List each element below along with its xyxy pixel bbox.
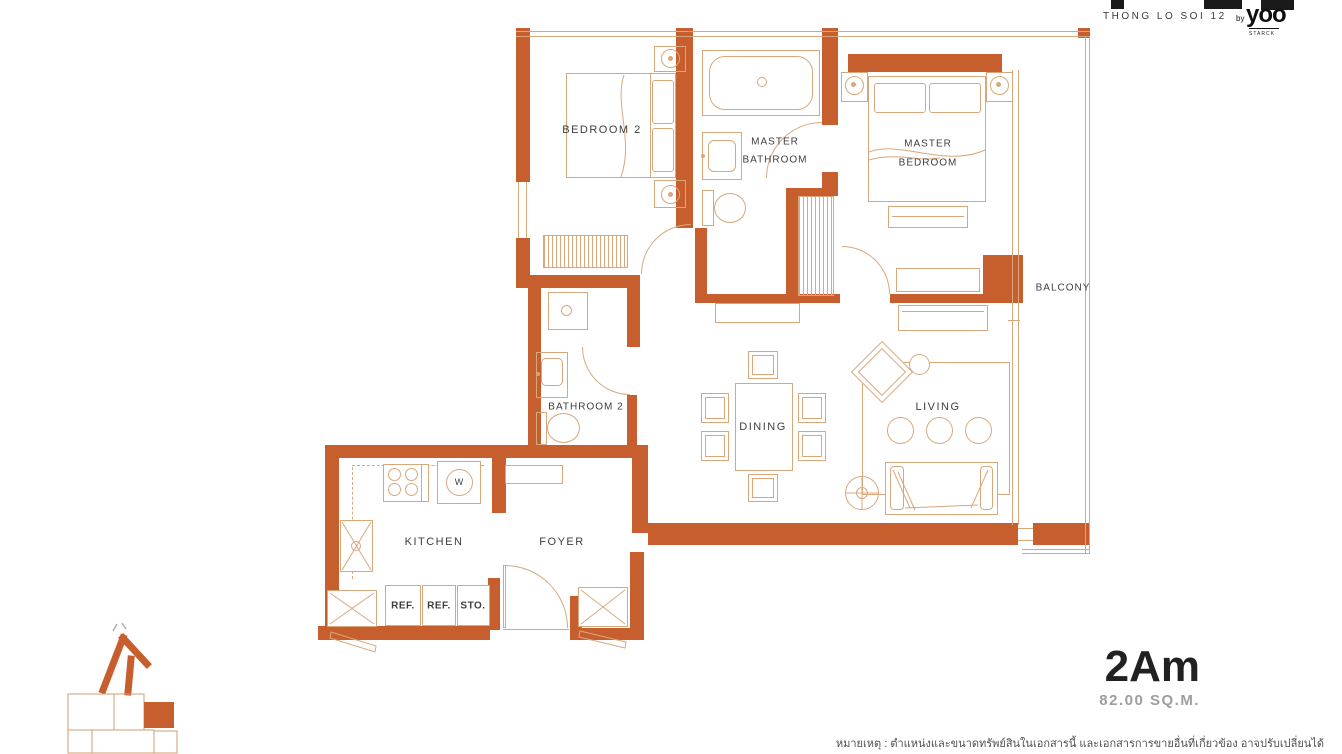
wall-segment	[786, 188, 798, 303]
wall-segment	[848, 54, 1002, 72]
wall-segment	[983, 255, 1023, 303]
pouf	[887, 417, 914, 444]
chair-seat	[752, 478, 774, 498]
north-arrow	[103, 638, 147, 692]
sofa-arm	[890, 466, 904, 510]
headboard-line	[650, 73, 651, 178]
wall-segment	[325, 445, 648, 458]
key-plan	[68, 694, 177, 753]
entrance-door-arc	[505, 565, 568, 628]
foyer-bench	[505, 465, 563, 484]
north-arrow-ticks	[113, 623, 126, 631]
key-plan-unit	[154, 731, 177, 753]
sink-basin	[708, 140, 736, 172]
brand-logo: yoo	[1246, 1, 1286, 29]
room-label-master-bedroom-2: BEDROOM	[899, 158, 958, 169]
wall-segment	[822, 28, 838, 125]
lamp-center	[996, 82, 1001, 87]
window-line	[516, 31, 1090, 32]
balcony-edge-line	[1022, 553, 1090, 554]
pouf	[965, 417, 992, 444]
side-table	[909, 354, 930, 375]
unit-info: 2Am 82.00 SQ.M.	[1040, 645, 1200, 709]
wall-segment	[570, 628, 644, 640]
lamp-center	[668, 56, 673, 61]
room-label-bathroom2: BATHROOM 2	[548, 402, 623, 413]
pillow	[652, 128, 674, 172]
wall-segment	[1033, 523, 1090, 545]
shaft	[327, 590, 377, 627]
key-plan-unit	[114, 694, 144, 730]
window-line	[1018, 70, 1019, 525]
bench-line	[892, 216, 964, 217]
unit-area: 82.00 SQ.M.	[1040, 692, 1200, 709]
project-name: THONG LO SOI 12	[1103, 11, 1227, 22]
faucet	[701, 154, 705, 158]
window-line	[1008, 320, 1020, 321]
window-line	[526, 182, 527, 238]
faucet	[536, 372, 540, 376]
burner	[388, 483, 401, 496]
room-label-dining: DINING	[739, 421, 787, 433]
key-plan-unit	[68, 694, 114, 730]
wall-segment	[516, 28, 530, 182]
key-plan-highlighted-unit	[144, 702, 174, 728]
console	[896, 268, 980, 292]
door-leaf	[503, 565, 506, 628]
room-label-living: LIVING	[915, 401, 960, 413]
toilet-tank	[536, 412, 547, 445]
window-line	[516, 36, 1090, 37]
drain	[561, 305, 572, 316]
pillow	[874, 83, 926, 113]
cropped-logo-fragment	[1204, 0, 1242, 9]
window-line	[1018, 528, 1033, 529]
balcony-edge-line	[1022, 549, 1090, 550]
door-arc	[842, 246, 890, 294]
burner	[388, 468, 401, 481]
room-label-master-bathroom-2: BATHROOM	[742, 155, 807, 166]
drain	[757, 77, 767, 87]
window-line	[1018, 540, 1033, 541]
tv-console	[898, 305, 988, 331]
lamp-center	[851, 82, 856, 87]
key-plan-unit	[92, 730, 154, 753]
shaft	[578, 587, 628, 627]
room-label-foyer: FOYER	[539, 536, 584, 548]
wall-segment	[630, 552, 644, 640]
stove-control-line	[421, 464, 422, 502]
appliance-label-washer: W	[455, 477, 464, 487]
appliance-label-sto: STO.	[460, 601, 485, 612]
balcony-edge-line	[1085, 36, 1086, 553]
wall-segment	[492, 458, 506, 513]
brand-by-label: by	[1236, 14, 1244, 23]
wall-segment	[318, 626, 490, 640]
cropped-logo-fragment	[1111, 0, 1124, 9]
lamp-center	[668, 192, 673, 197]
room-label-balcony: BALCONY	[1036, 283, 1091, 294]
chair-seat	[752, 355, 774, 375]
chair-seat	[705, 435, 725, 457]
door-arc	[766, 122, 822, 178]
bed-bench	[888, 206, 968, 228]
balcony-edge-line	[1089, 36, 1090, 553]
burner	[405, 483, 418, 496]
sink-basin	[541, 358, 563, 386]
floor-plan-page: BEDROOM 2 MASTER BATHROOM MASTER BEDROOM…	[0, 0, 1342, 754]
walkin-closet	[798, 196, 834, 296]
console-line	[902, 311, 984, 312]
appliance-label-ref1: REF.	[391, 601, 415, 612]
chair-seat	[802, 435, 822, 457]
door-arc	[641, 224, 691, 274]
wall-segment	[890, 294, 983, 303]
pillow	[652, 80, 674, 124]
brand-underline	[1249, 28, 1279, 29]
unit-name: 2Am	[1040, 645, 1200, 689]
wall-segment	[627, 275, 640, 347]
toilet-tank	[702, 190, 714, 226]
wall-segment	[695, 228, 707, 303]
pouf	[926, 417, 953, 444]
wall-segment	[632, 458, 648, 533]
threshold-line	[503, 629, 569, 630]
key-plan-unit	[68, 730, 92, 753]
footnote: หมายเหตุ : ตำแหน่งและขนาดทรัพย์สินในเอกส…	[836, 734, 1324, 752]
wall-segment	[648, 523, 1018, 545]
window-line	[518, 182, 519, 238]
door-arc	[582, 347, 630, 395]
brand-sub-label: STARCK	[1249, 31, 1275, 37]
wall-segment	[516, 275, 640, 288]
window-line	[1012, 70, 1013, 525]
sofa-arm	[980, 466, 993, 510]
sink-drain	[351, 541, 361, 551]
chair-seat	[705, 397, 725, 419]
sideboard	[715, 303, 800, 323]
chair-seat	[802, 397, 822, 419]
room-label-bedroom2: BEDROOM 2	[562, 124, 642, 136]
floor-lamp-center	[856, 487, 868, 499]
room-label-master-bedroom-1: MASTER	[904, 139, 952, 150]
burner	[405, 468, 418, 481]
toilet-bowl	[714, 193, 746, 223]
appliance-label-ref2: REF.	[427, 601, 451, 612]
room-label-master-bathroom-1: MASTER	[751, 137, 799, 148]
pillow	[929, 83, 981, 113]
wardrobe	[543, 235, 628, 268]
room-label-kitchen: KITCHEN	[405, 536, 464, 548]
toilet-bowl	[547, 413, 580, 443]
